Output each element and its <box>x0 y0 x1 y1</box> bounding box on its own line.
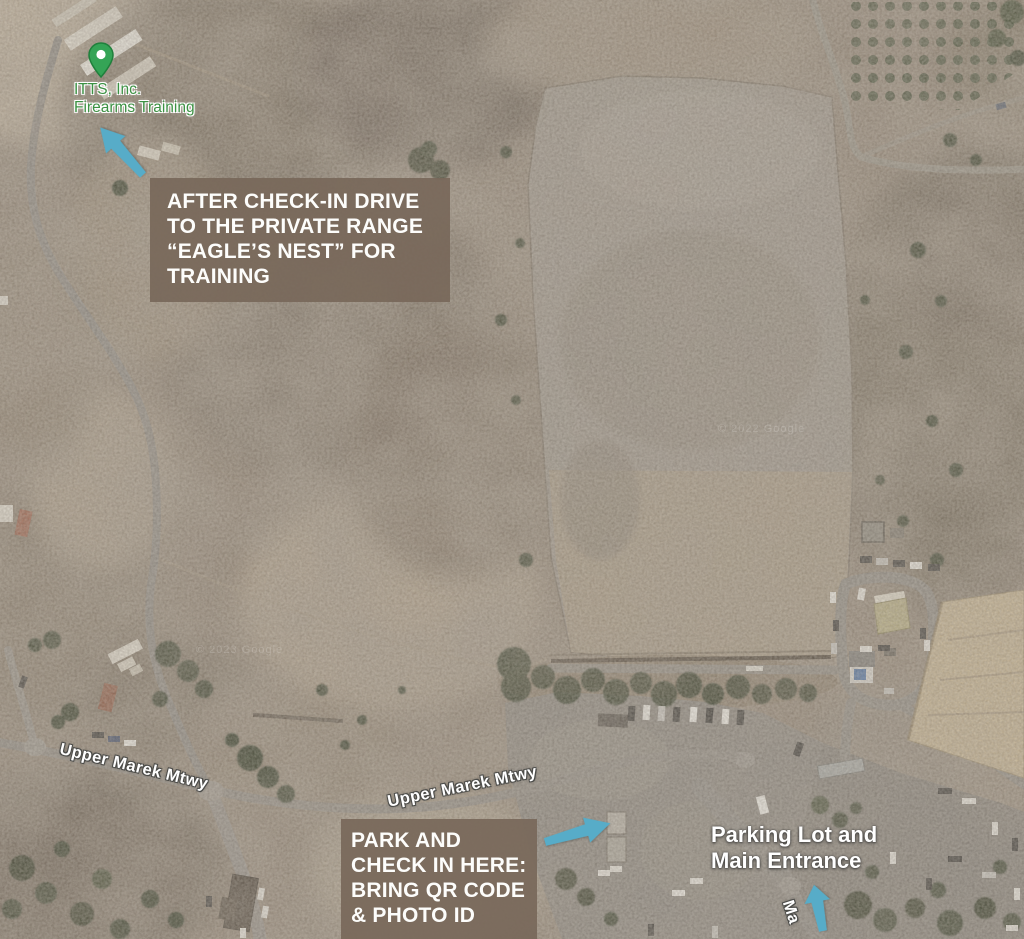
map-pin-icon <box>88 42 114 78</box>
callout-line: BRING QR CODE <box>351 878 533 903</box>
callout-line: TRAINING <box>167 264 444 289</box>
satellite-imagery <box>0 0 1024 939</box>
callout-line: AFTER CHECK-IN DRIVE <box>167 189 444 214</box>
parking-lot-caption: Parking Lot and Main Entrance <box>711 822 877 874</box>
parking-lot-caption-line2: Main Entrance <box>711 848 877 874</box>
callout-line: “EAGLE’S NEST” FOR <box>167 239 444 264</box>
callout-line: PARK AND <box>351 828 533 853</box>
callout-after-checkin: AFTER CHECK-IN DRIVE TO THE PRIVATE RANG… <box>150 178 450 302</box>
callout-park-checkin: PARK AND CHECK IN HERE: BRING QR CODE & … <box>341 819 537 939</box>
grain-light <box>0 0 1024 939</box>
place-label-line1: ITTS, Inc. <box>74 81 195 99</box>
place-label: ITTS, Inc. Firearms Training <box>74 81 195 117</box>
imagery-watermark: © 2022 Google <box>718 423 805 435</box>
parking-lot-caption-line1: Parking Lot and <box>711 822 877 848</box>
callout-line: TO THE PRIVATE RANGE <box>167 214 444 239</box>
annotated-satellite-map: © 2023 Google © 2022 Google Upper Marek … <box>0 0 1024 939</box>
callout-line: CHECK IN HERE: <box>351 853 533 878</box>
callout-line: & PHOTO ID <box>351 903 533 928</box>
place-label-line2: Firearms Training <box>74 99 195 117</box>
imagery-watermark: © 2023 Google <box>196 644 283 656</box>
